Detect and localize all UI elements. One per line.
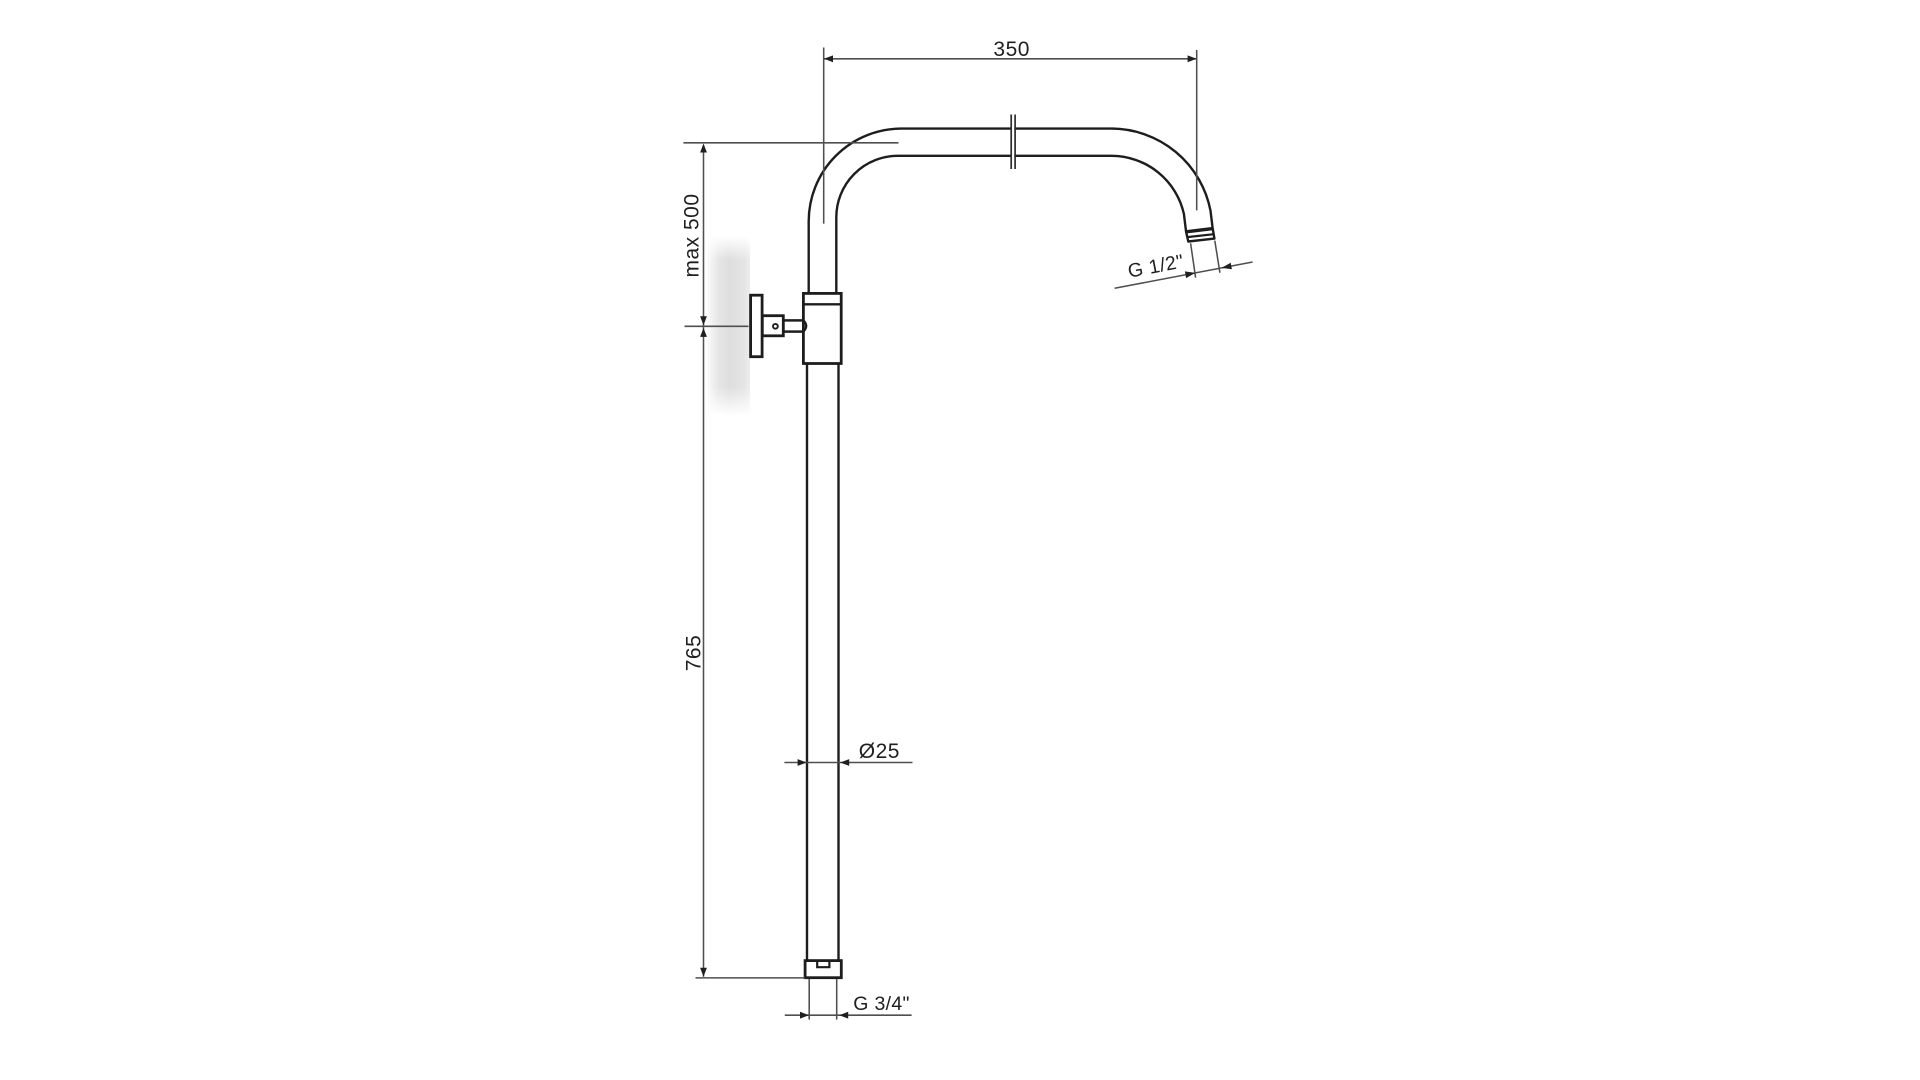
svg-text:G 1/2": G 1/2"	[1126, 251, 1186, 283]
svg-text:765: 765	[682, 635, 705, 672]
svg-text:max 500: max 500	[680, 193, 703, 277]
svg-text:G 3/4": G 3/4"	[853, 993, 909, 1015]
svg-text:350: 350	[993, 38, 1030, 61]
svg-text:Ø25: Ø25	[859, 740, 900, 763]
